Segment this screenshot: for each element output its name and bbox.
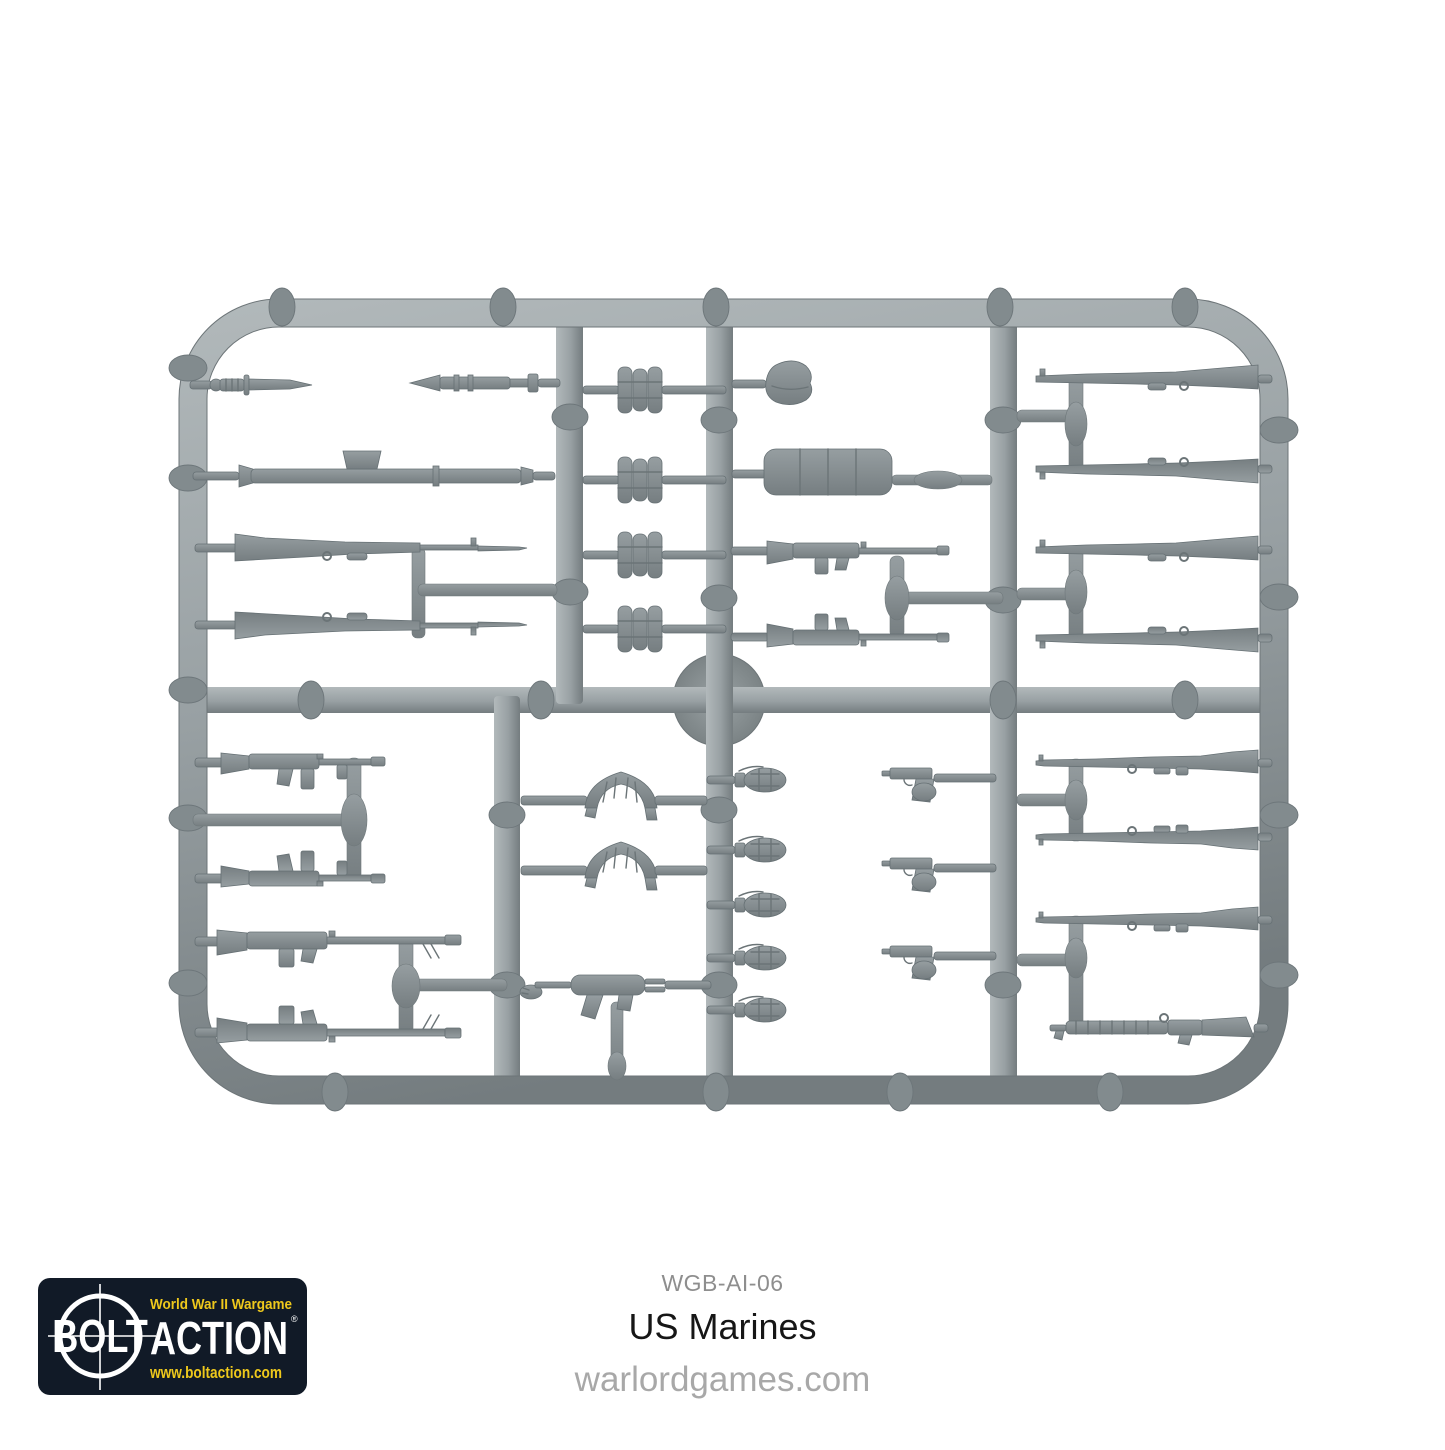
sprue — [169, 288, 1298, 1111]
part-bar-rifle — [217, 930, 461, 967]
part-utility-cap — [732, 361, 812, 405]
publisher-website: warlordgames.com — [0, 1360, 1445, 1400]
part-pack-bedroll — [732, 449, 892, 495]
sprue-image — [0, 0, 1445, 1445]
part-grenade-bundle — [583, 367, 726, 413]
part-pistol-in-hand — [882, 768, 996, 802]
product-title: US Marines — [0, 1306, 1445, 1348]
part-grenade-bundle — [583, 606, 726, 652]
product-photo: BOLT World War II Wargame ACTION ® www.b… — [0, 0, 1445, 1445]
part-bazooka-launcher — [193, 451, 555, 487]
part-grenade-bundle — [583, 532, 726, 578]
part-garand-with-bayonet — [235, 612, 527, 639]
part-bar-rifle — [217, 1006, 461, 1043]
part-grenade-bundle — [583, 457, 726, 503]
part-pistol-in-hand — [882, 858, 996, 892]
part-ammo-belt — [521, 842, 707, 890]
part-bar-rifle — [731, 541, 949, 574]
part-pistol-in-hand — [882, 946, 996, 980]
product-code: WGB-AI-06 — [0, 1270, 1445, 1297]
part-bazooka-rocket — [410, 374, 560, 392]
part-bar-rifle — [731, 614, 949, 647]
part-garand-with-bayonet — [235, 534, 527, 561]
part-ammo-belt — [521, 772, 707, 820]
